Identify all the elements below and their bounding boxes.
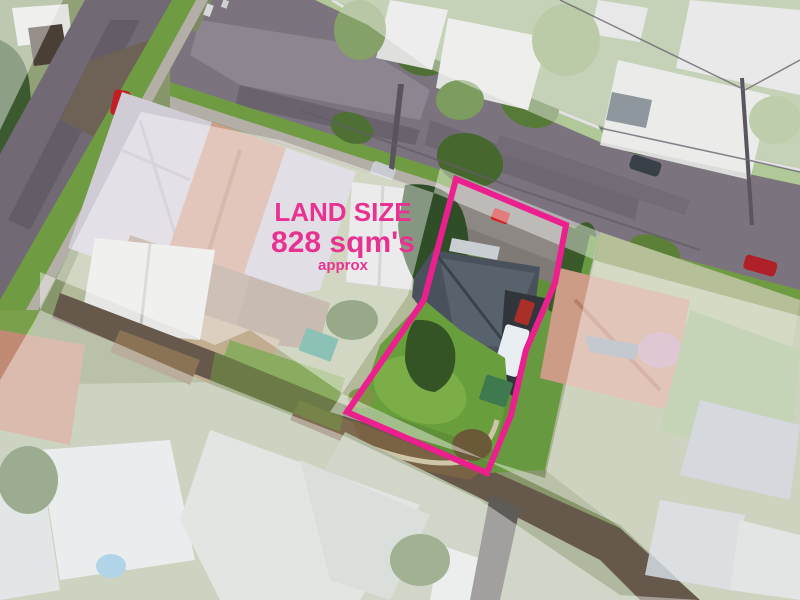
svg-text:approx: approx xyxy=(318,257,369,274)
svg-text:LAND SIZE: LAND SIZE xyxy=(274,197,411,227)
svg-text:828 sqm's: 828 sqm's xyxy=(271,226,415,259)
